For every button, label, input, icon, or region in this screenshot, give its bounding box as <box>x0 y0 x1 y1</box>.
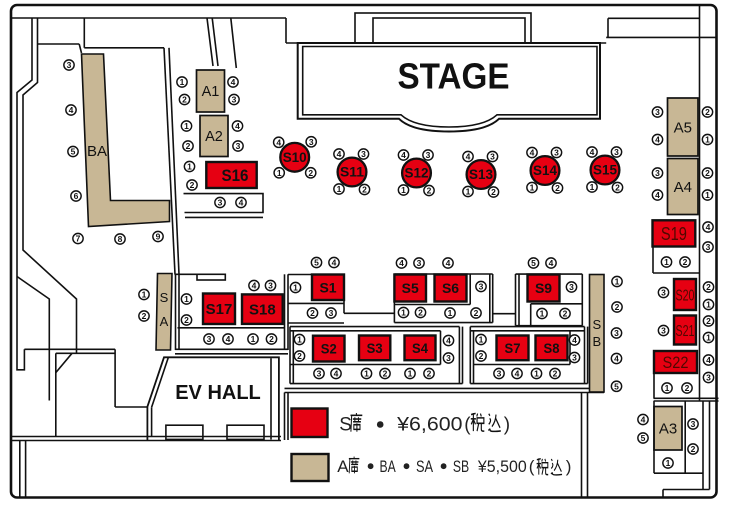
svg-text:1: 1 <box>705 190 710 200</box>
svg-text:4: 4 <box>446 258 451 268</box>
svg-text:1: 1 <box>479 335 484 345</box>
svg-text:5: 5 <box>71 147 76 157</box>
svg-text:4: 4 <box>252 281 257 291</box>
svg-text:1: 1 <box>142 290 147 300</box>
svg-text:STAGE: STAGE <box>398 56 510 97</box>
svg-text:4: 4 <box>706 355 711 365</box>
svg-text:1: 1 <box>251 334 256 344</box>
svg-text:4: 4 <box>549 258 554 268</box>
svg-text:S18: S18 <box>249 302 276 319</box>
svg-text:2: 2 <box>184 315 189 325</box>
svg-text:BA: BA <box>87 143 107 160</box>
svg-text:1: 1 <box>666 458 671 468</box>
svg-text:S2: S2 <box>321 341 337 357</box>
svg-text:4: 4 <box>337 149 342 159</box>
svg-text:A1: A1 <box>202 84 220 100</box>
svg-text:3: 3 <box>497 369 502 379</box>
svg-text:3: 3 <box>236 141 241 151</box>
svg-text:S3: S3 <box>367 340 383 356</box>
svg-text:B: B <box>592 334 601 349</box>
svg-text:4: 4 <box>399 258 404 268</box>
svg-text:2: 2 <box>705 168 710 178</box>
svg-text:3: 3 <box>655 107 660 117</box>
svg-text:3: 3 <box>569 282 574 292</box>
svg-text:SA: SA <box>416 457 434 476</box>
svg-text:7: 7 <box>76 234 81 244</box>
svg-text:4: 4 <box>530 148 535 158</box>
svg-text:1: 1 <box>590 182 595 192</box>
svg-text:4: 4 <box>706 222 711 232</box>
svg-text:3: 3 <box>706 373 711 383</box>
svg-text:2: 2 <box>362 185 367 195</box>
svg-text:S1: S1 <box>319 279 336 295</box>
svg-text:4: 4 <box>614 354 619 364</box>
svg-text:2: 2 <box>182 95 187 105</box>
svg-text:S13: S13 <box>469 167 493 182</box>
svg-text:1: 1 <box>337 184 342 194</box>
svg-text:2: 2 <box>563 309 568 319</box>
svg-text:3: 3 <box>446 353 451 363</box>
svg-text:1: 1 <box>187 162 192 172</box>
svg-text:2: 2 <box>683 257 688 267</box>
svg-text:4: 4 <box>590 147 595 157</box>
svg-text:1: 1 <box>466 187 471 197</box>
svg-text:1: 1 <box>408 369 413 379</box>
svg-text:1: 1 <box>293 283 298 293</box>
svg-text:1: 1 <box>664 257 669 267</box>
svg-text:2: 2 <box>190 180 195 190</box>
svg-text:4: 4 <box>239 198 244 208</box>
svg-text:2: 2 <box>491 187 496 197</box>
svg-text:4: 4 <box>334 369 339 379</box>
svg-text:¥5,500: ¥5,500 <box>477 457 527 476</box>
svg-text:3: 3 <box>661 326 666 336</box>
svg-text:3: 3 <box>67 60 72 70</box>
svg-text:1: 1 <box>705 135 710 145</box>
svg-text:(: ( <box>529 457 535 476</box>
svg-text:8: 8 <box>118 234 123 244</box>
svg-text:3: 3 <box>614 147 619 157</box>
svg-text:): ) <box>504 415 510 436</box>
svg-text:S8: S8 <box>544 340 560 356</box>
svg-text:S9: S9 <box>535 280 552 296</box>
svg-text:A2: A2 <box>205 129 223 145</box>
svg-text:3: 3 <box>614 328 619 338</box>
svg-text:1: 1 <box>180 77 185 87</box>
svg-text:5: 5 <box>314 258 319 268</box>
svg-text:4: 4 <box>276 137 281 147</box>
svg-text:2: 2 <box>615 302 620 312</box>
svg-text:4: 4 <box>515 369 520 379</box>
svg-text:S16: S16 <box>222 167 249 185</box>
svg-text:4: 4 <box>235 121 240 131</box>
svg-text:4: 4 <box>466 152 471 162</box>
svg-text:A3: A3 <box>659 421 677 438</box>
svg-text:2: 2 <box>427 186 432 196</box>
svg-text:A4: A4 <box>674 179 692 196</box>
svg-text:4: 4 <box>446 336 451 346</box>
svg-text:3: 3 <box>329 308 334 318</box>
svg-text:S22: S22 <box>663 354 689 372</box>
svg-text:5: 5 <box>531 258 536 268</box>
svg-text:3: 3 <box>232 95 237 105</box>
svg-text:2: 2 <box>427 369 432 379</box>
svg-text:2: 2 <box>308 168 313 178</box>
svg-text:SB: SB <box>453 457 469 476</box>
svg-text:3: 3 <box>361 149 366 159</box>
svg-text:2: 2 <box>553 369 558 379</box>
svg-text:4: 4 <box>332 258 337 268</box>
svg-text:2: 2 <box>186 141 191 151</box>
svg-text:2: 2 <box>706 282 711 292</box>
svg-text:3: 3 <box>554 148 559 158</box>
svg-text:1: 1 <box>297 335 302 345</box>
svg-text:1: 1 <box>665 383 670 393</box>
svg-text:2: 2 <box>383 369 388 379</box>
svg-text:1: 1 <box>706 333 711 343</box>
svg-text:4: 4 <box>401 150 406 160</box>
svg-text:2: 2 <box>691 444 696 454</box>
svg-text:3: 3 <box>691 419 696 429</box>
svg-text:1: 1 <box>184 121 189 131</box>
svg-text:1: 1 <box>448 308 453 318</box>
svg-text:6: 6 <box>74 191 79 201</box>
svg-text:1: 1 <box>534 369 539 379</box>
svg-text:1: 1 <box>615 277 620 287</box>
svg-text:S11: S11 <box>340 165 365 180</box>
svg-text:2: 2 <box>479 351 484 361</box>
svg-text:3: 3 <box>268 281 273 291</box>
svg-text:S17: S17 <box>206 301 233 318</box>
svg-text:3: 3 <box>490 152 495 162</box>
svg-text:S19: S19 <box>661 224 687 244</box>
svg-text:A5: A5 <box>674 119 692 136</box>
svg-text:A: A <box>160 314 169 329</box>
svg-text:4: 4 <box>641 415 646 425</box>
svg-text:S: S <box>339 415 352 436</box>
svg-text:2: 2 <box>310 308 315 318</box>
svg-text:S21: S21 <box>676 323 695 340</box>
svg-text:2: 2 <box>555 183 560 193</box>
svg-text:2: 2 <box>474 308 479 318</box>
svg-text:9: 9 <box>156 232 161 242</box>
svg-text:2: 2 <box>705 107 710 117</box>
svg-text:3: 3 <box>309 137 314 147</box>
svg-text:4: 4 <box>655 190 660 200</box>
svg-text:BA: BA <box>380 457 397 476</box>
svg-text:S6: S6 <box>442 280 459 296</box>
svg-text:1: 1 <box>401 185 406 195</box>
svg-text:S4: S4 <box>412 340 428 356</box>
svg-text:S20: S20 <box>676 287 695 304</box>
svg-text:1: 1 <box>401 308 406 318</box>
svg-text:EV HALL: EV HALL <box>175 382 261 404</box>
svg-text:3: 3 <box>218 198 223 208</box>
svg-text:4: 4 <box>69 105 74 115</box>
svg-text:4: 4 <box>226 334 231 344</box>
svg-text:3: 3 <box>417 258 422 268</box>
svg-text:4: 4 <box>655 135 660 145</box>
svg-text:2: 2 <box>706 316 711 326</box>
svg-text:2: 2 <box>418 308 423 318</box>
svg-text:3: 3 <box>317 369 322 379</box>
svg-text:¥6,600: ¥6,600 <box>396 415 462 436</box>
svg-text:): ) <box>566 457 572 476</box>
svg-text:S14: S14 <box>533 163 557 178</box>
svg-text:1: 1 <box>184 294 189 304</box>
svg-text:3: 3 <box>661 288 666 298</box>
svg-text:3: 3 <box>207 334 212 344</box>
svg-text:S7: S7 <box>505 340 521 356</box>
svg-text:4: 4 <box>231 77 236 87</box>
svg-text:4: 4 <box>572 335 577 345</box>
svg-text:A: A <box>337 457 349 476</box>
svg-text:3: 3 <box>572 353 577 363</box>
svg-text:2: 2 <box>142 311 147 321</box>
svg-text:2: 2 <box>615 183 620 193</box>
svg-text:2: 2 <box>269 334 274 344</box>
svg-text:3: 3 <box>426 150 431 160</box>
svg-text:2: 2 <box>685 383 690 393</box>
svg-text:S10: S10 <box>283 150 307 165</box>
svg-text:3: 3 <box>706 242 711 252</box>
svg-text:S: S <box>160 290 169 305</box>
svg-text:3: 3 <box>479 282 484 292</box>
svg-text:S12: S12 <box>405 166 429 181</box>
svg-text:2: 2 <box>297 351 302 361</box>
svg-text:S5: S5 <box>402 280 419 296</box>
svg-text:1: 1 <box>540 309 545 319</box>
svg-text:1: 1 <box>277 168 282 178</box>
svg-text:1: 1 <box>530 183 535 193</box>
svg-text:5: 5 <box>641 433 646 443</box>
svg-text:1: 1 <box>706 300 711 310</box>
svg-text:1: 1 <box>364 369 369 379</box>
svg-text:S: S <box>592 317 601 332</box>
svg-text:5: 5 <box>614 381 619 391</box>
svg-text:S15: S15 <box>593 163 617 178</box>
svg-text:(: ( <box>464 415 471 436</box>
svg-text:3: 3 <box>655 168 660 178</box>
